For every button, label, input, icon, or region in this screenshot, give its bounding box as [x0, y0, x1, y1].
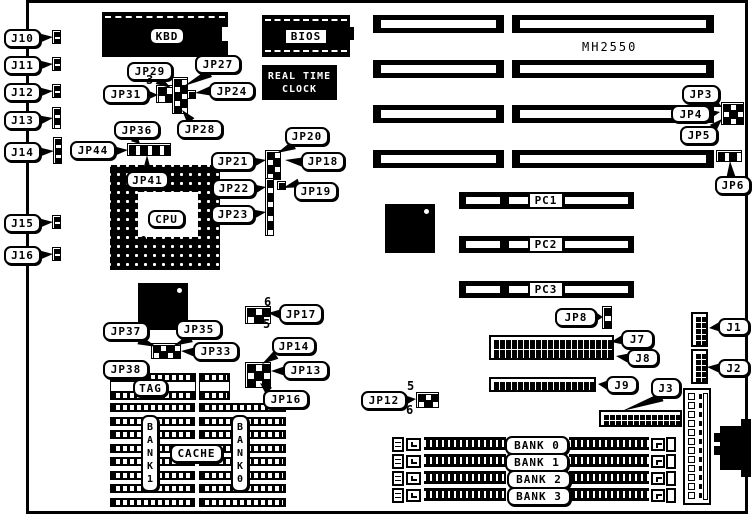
jp18-23-strip-bottom-cell [267, 187, 274, 194]
j7-j8-header-pin [554, 350, 559, 359]
j3-header-pin [652, 415, 657, 420]
simm-slot-3-clip-right [651, 472, 665, 485]
callout-bank1-cache: B A N K 1 [141, 415, 159, 492]
callout-kbd: KBD [149, 27, 185, 45]
j3-header-pin [628, 421, 633, 426]
j9-header-pin [518, 382, 523, 391]
j9-header-pin [578, 382, 583, 391]
jp12-block-cell [432, 401, 439, 408]
j10-conn [52, 30, 61, 44]
j14-conn-cell [55, 159, 62, 164]
j7-j8-header-pin [578, 340, 583, 349]
power-pin [688, 393, 695, 400]
jp13-16-block-cell [263, 364, 271, 372]
kbd-jumper-mid-cell [174, 93, 181, 100]
j7-j8-header-pin [518, 340, 523, 349]
callout-jp24: JP24 [209, 82, 255, 100]
power-pin-dash [699, 493, 702, 498]
callout-pc3: PC3 [528, 281, 564, 298]
jp33-block-cell [167, 352, 174, 359]
jp18-23-strip-bottom-cell [267, 180, 274, 187]
j10-conn-cell [54, 40, 61, 44]
simm-slot-3-bl2 [395, 480, 401, 481]
j7-j8-header-pin [596, 350, 601, 359]
power-pin [688, 456, 695, 463]
simm-slot-2-bl2 [395, 463, 401, 464]
power-pin [688, 429, 695, 436]
j1-header [691, 312, 708, 347]
j3-header-pin [640, 415, 645, 420]
power-pin-dash [699, 412, 702, 417]
j3-header-pin [634, 415, 639, 420]
j3-header-pin [676, 421, 681, 426]
jp18-23-strip-top-cell [267, 159, 274, 166]
j2-header-pin [696, 372, 701, 377]
j7-j8-header-pin [548, 350, 553, 359]
j1-header-pin [702, 317, 707, 322]
simm-slot-1-crh [656, 443, 662, 448]
j9-header-pin [560, 382, 565, 391]
jp18-23-strip-bottom-cell [267, 194, 274, 201]
jp33-block-cell [160, 345, 167, 352]
callout-jp14: JP14 [272, 337, 316, 355]
simm-slot-1-bar2 [569, 437, 649, 450]
jp18-23-strip-top-cell [274, 166, 281, 173]
jp3-5-block-cell [737, 104, 744, 111]
callout-jp19: JP19 [294, 182, 338, 201]
jp12-block-cell [425, 394, 432, 401]
j7-j8-header-pin [530, 350, 535, 359]
j7-j8-header-pin [554, 340, 559, 349]
jp8-block [602, 306, 612, 329]
power-pin [688, 483, 695, 490]
j14-conn [53, 137, 62, 164]
j3-header-pin [604, 421, 609, 426]
kbd-jumper-mid-cell [174, 79, 181, 86]
callout-jp41: JP41 [126, 171, 169, 189]
j7-j8-header-pin [518, 350, 523, 359]
simm-slot-2-bl1 [395, 459, 401, 460]
jp17-block-cell [255, 316, 263, 324]
callout-jp28: JP28 [177, 120, 223, 139]
pci-slot-1-stripe1 [466, 197, 500, 204]
simm-slot-3-bl1 [395, 476, 401, 477]
jp18-23-strip-bottom-cell [267, 208, 274, 215]
jp17-block-cell [255, 308, 263, 316]
jp13-16-block-cell [247, 372, 255, 380]
jp18-23-strip-bottom-cell [267, 229, 274, 236]
j3-header-pin [616, 415, 621, 420]
power-pin-dash [699, 421, 702, 426]
jp18-23-strip-top [265, 150, 281, 180]
j7-j8-header-pin [608, 350, 613, 359]
power-rail [703, 393, 708, 500]
kbd-jumper-mid-cell [181, 79, 188, 86]
callout-j15: J15 [4, 214, 41, 233]
jp3-5-block-cell [737, 118, 744, 125]
callout-j2: J2 [718, 359, 750, 377]
j7-j8-header-pin [512, 350, 517, 359]
j3-header-pin [658, 415, 663, 420]
isa-slot-2-seg2-stripe [520, 65, 706, 73]
jp36-strip-cell [165, 145, 171, 156]
simm-slot-1-bl2 [395, 446, 401, 447]
callout-jp16: JP16 [263, 390, 309, 409]
jp3-5-block-cell [730, 104, 737, 111]
jp18-23-strip-bottom-cell [267, 222, 274, 229]
j3-header-pin [610, 415, 615, 420]
power-pin [688, 492, 695, 499]
jp33-block-cell [160, 352, 167, 359]
simm-slot-1-bracket-right [666, 437, 676, 452]
j7-j8-header-pin [602, 350, 607, 359]
j11-conn [52, 57, 61, 71]
jp18-23-strip-top-cell [267, 152, 274, 159]
simm-slot-3-bracket-right [666, 471, 676, 486]
j2-header-pin [702, 354, 707, 359]
callout-bank3-simm: BANK 3 [507, 487, 571, 506]
power-pin [688, 420, 695, 427]
callout-jp12: JP12 [361, 391, 407, 410]
j9-header-pin [542, 382, 547, 391]
j3-header-pin [634, 421, 639, 426]
power-pin-dash [699, 457, 702, 462]
jp18-23-strip-top-cell [274, 152, 281, 159]
power-pin [688, 438, 695, 445]
callout-jp3: JP3 [682, 85, 720, 104]
jp13-16-block-cell [263, 372, 271, 380]
jp13-16-block [245, 362, 271, 388]
j3-header-pin [646, 415, 651, 420]
callout-j9: J9 [606, 376, 638, 394]
power-pin-dash [699, 475, 702, 480]
rtc-chip-text: REAL TIME CLOCK [262, 65, 337, 100]
simm-slot-4-crh [656, 494, 662, 499]
j7-j8-header [489, 335, 614, 360]
j9-header-pin [524, 382, 529, 391]
simm-slot-1-bracket-left [392, 437, 404, 452]
callout-jp22: JP22 [212, 179, 256, 198]
j9-header [489, 377, 596, 392]
pci-slot-1-stripe3 [565, 197, 628, 204]
j7-j8-header-pin [560, 350, 565, 359]
simm-slot-3-bar1 [424, 471, 506, 484]
callout-j16: J16 [4, 246, 41, 265]
callout-jp13: JP13 [283, 361, 329, 380]
jp12-block-cell [432, 394, 439, 401]
jp19-pin [277, 181, 286, 190]
j9-header-pin [500, 382, 505, 391]
power-pin [688, 411, 695, 418]
simm-slot-4-bar1 [424, 488, 506, 501]
jp18-23-strip-top-cell [274, 159, 281, 166]
bios-chip-tab [349, 27, 354, 40]
jp17-block-cell [247, 308, 255, 316]
jp6-block-cell [736, 152, 742, 162]
j7-j8-header-pin [506, 340, 511, 349]
j3-header-pin [622, 421, 627, 426]
cache-ctrl-chip-pin1-dot [177, 288, 182, 293]
power-pin-dash [699, 394, 702, 399]
j3-header-pin [670, 421, 675, 426]
j9-header-pin [566, 382, 571, 391]
callout-j7: J7 [621, 330, 654, 349]
pci-slot-1-stripe2 [509, 197, 529, 204]
pin-number-pin3-kbd-jumper: 3 [146, 73, 153, 87]
callout-cache: CACHE [170, 444, 223, 463]
j7-j8-header-pin [494, 340, 499, 349]
jp18-23-strip-bottom [265, 178, 274, 236]
simm-slot-2-bar2 [569, 454, 649, 467]
callout-jp23: JP23 [211, 205, 255, 224]
pci-slot-3-stripe1 [466, 286, 500, 293]
j3-header-pin [676, 415, 681, 420]
pci-slot-2-stripe3 [565, 241, 628, 248]
j7-j8-header-pin [566, 350, 571, 359]
j7-j8-header-pin [548, 340, 553, 349]
j1-header-pin [702, 335, 707, 340]
isa-slot-1-seg1-stripe [381, 20, 496, 28]
isa-slot-1-seg2-stripe [520, 20, 706, 28]
jp3-5-block-cell [723, 111, 730, 118]
jp33-block-cell [174, 352, 181, 359]
j13-conn-cell [54, 124, 61, 129]
j9-header-pin [512, 382, 517, 391]
kbd-jumper-mid-cell [174, 86, 181, 93]
j3-header-pin [616, 421, 621, 426]
j9-header-pin [590, 382, 595, 391]
jp17-block-cell [263, 308, 271, 316]
j3-header [599, 410, 682, 427]
simm-slot-1-bl1 [395, 442, 401, 443]
jp33-block-cell [174, 345, 181, 352]
jp12-block [416, 392, 439, 408]
jp8-block-cell [604, 315, 612, 322]
j1-header-pin [702, 329, 707, 334]
callout-j11: J11 [4, 56, 41, 75]
j7-j8-header-pin [584, 350, 589, 359]
j7-j8-header-pin [572, 340, 577, 349]
chipset-chip-pin1-dot [424, 209, 429, 214]
kbd-jumper-nub [187, 90, 196, 99]
simm-slot-4-clh [411, 493, 417, 498]
jp33-block [151, 343, 181, 359]
pin-number-pin5-jp12: 5 [407, 379, 414, 393]
callout-jp4: JP4 [671, 105, 711, 123]
j2-header-pin [702, 366, 707, 371]
jp33-block-cell [153, 352, 160, 359]
jp3-5-block-cell [730, 118, 737, 125]
simm-slot-4-clip-left [406, 489, 421, 502]
jp18-23-strip-top-cell [274, 173, 281, 180]
bios-chip-dash-top [265, 19, 347, 21]
simm-slot-1-clh [411, 442, 417, 447]
jp3-5-block [721, 102, 744, 125]
power-pin-dash [699, 448, 702, 453]
callout-jp36: JP36 [114, 121, 160, 139]
jp6-block [716, 150, 742, 162]
isa-slot-2-seg1-stripe [381, 65, 496, 73]
simm-slot-2-bracket-right [666, 454, 676, 469]
jp33-block-cell [153, 345, 160, 352]
jp13-16-block-cell [247, 380, 255, 388]
j1-header-pin [696, 323, 701, 328]
j9-header-pin [572, 382, 577, 391]
j1-header-pin [702, 323, 707, 328]
callout-jp38: JP38 [103, 360, 149, 379]
j1-header-pin [702, 341, 707, 346]
j7-j8-header-pin [608, 340, 613, 349]
jp3-5-block-cell [723, 104, 730, 111]
cpu-pin1-dot [141, 236, 146, 241]
j7-j8-header-pin [542, 340, 547, 349]
j7-j8-header-pin [506, 350, 511, 359]
j7-j8-header-pin [524, 350, 529, 359]
kbd-jumper-mid-cell [181, 107, 188, 114]
simm-slot-4-bracket-left [392, 488, 404, 503]
cache-chip-col1-row3-legs-bottom [199, 498, 286, 507]
j1-header-pin [696, 317, 701, 322]
jp36-strip [127, 143, 171, 156]
j3-header-pin [604, 415, 609, 420]
simm-slot-3-bar2 [569, 471, 649, 484]
j2-header-pin [696, 360, 701, 365]
jp12-block-cell [418, 394, 425, 401]
pin-number-pin5-jp17: 5 [263, 317, 270, 331]
j7-j8-header-pin [572, 350, 577, 359]
j7-j8-header-pin [500, 350, 505, 359]
jp12-block-cell [425, 401, 432, 408]
pci-slot-3-stripe2 [509, 286, 529, 293]
callout-jp35: JP35 [176, 320, 222, 339]
j3-header-pin [646, 421, 651, 426]
jp8-block-cell [604, 322, 612, 329]
pci-slot-2-stripe1 [466, 241, 500, 248]
power-pin [688, 465, 695, 472]
j15-conn-cell [54, 225, 61, 229]
j7-j8-header-pin [536, 340, 541, 349]
jp13-16-block-cell [255, 364, 263, 372]
callout-jp21: JP21 [211, 152, 255, 171]
pin-number-pin6-jp12: 6 [406, 403, 413, 417]
simm-slot-2-crh [656, 460, 662, 465]
j2-header-pin [696, 378, 701, 383]
j7-j8-header-pin [536, 350, 541, 359]
j7-j8-header-pin [512, 340, 517, 349]
simm-slot-2-bracket-left [392, 454, 404, 469]
j7-j8-header-pin [566, 340, 571, 349]
callout-j1: J1 [718, 318, 750, 336]
j9-header-pin [548, 382, 553, 391]
jp18-23-strip-bottom-cell [267, 201, 274, 208]
simm-slot-2-clip-right [651, 455, 665, 468]
j7-j8-header-pin [494, 350, 499, 359]
j9-header-pin [494, 382, 499, 391]
j7-j8-header-pin [500, 340, 505, 349]
simm-slot-4-bl1 [395, 493, 401, 494]
callout-jp5: JP5 [680, 126, 718, 145]
j7-j8-header-pin [530, 340, 535, 349]
callout-jp27: JP27 [195, 55, 241, 74]
j7-j8-header-pin [560, 340, 565, 349]
j12-conn-cell [54, 94, 61, 98]
jp13-16-block-cell [247, 364, 255, 372]
j15-conn [52, 215, 61, 229]
callout-bank0-cache: B A N K 0 [231, 415, 249, 492]
j7-j8-header-pin [590, 340, 595, 349]
power-pin-dash [699, 484, 702, 489]
bios-chip-dash-bottom [265, 50, 347, 52]
simm-slot-1-clip-left [406, 438, 421, 451]
jp13-16-block-cell [263, 380, 271, 388]
keyboard-din-connector-3 [741, 419, 751, 477]
j12-conn [52, 84, 61, 98]
j3-header-pin [658, 421, 663, 426]
power-pin-dash [699, 466, 702, 471]
j13-conn [52, 107, 61, 129]
power-connector [683, 388, 711, 505]
jp17-block-cell [247, 316, 255, 324]
j7-j8-header-pin [602, 340, 607, 349]
j2-header [691, 349, 708, 384]
j3-header-pin [640, 421, 645, 426]
j1-header-pin [696, 329, 701, 334]
tag-socket-2-legs-top [199, 373, 230, 382]
simm-slot-3-bracket-left [392, 471, 404, 486]
power-pin-dash [699, 403, 702, 408]
callout-cpu: CPU [148, 210, 185, 228]
callout-jp44: JP44 [70, 141, 116, 160]
j9-header-pin [530, 382, 535, 391]
jp13-16-block-cell [255, 372, 263, 380]
isa-slot-4-seg1-stripe [381, 155, 496, 163]
isa-slot-3-seg1-stripe [381, 110, 496, 118]
simm-slot-3-clh [411, 476, 417, 481]
pin-number-pin6-jp17: 6 [264, 295, 271, 309]
power-pin [688, 474, 695, 481]
j11-conn-cell [54, 67, 61, 71]
kbd-jumper-left-cell [158, 95, 166, 103]
j7-j8-header-pin [542, 350, 547, 359]
callout-jp37: JP37 [103, 322, 149, 341]
j3-header-pin [610, 421, 615, 426]
callout-jp17: JP17 [279, 304, 323, 324]
kbd-jumper-mid-cell [174, 107, 181, 114]
tag-socket-2-legs-bottom [199, 391, 230, 400]
callout-jp8: JP8 [555, 308, 597, 327]
simm-slot-4-bar2 [569, 488, 649, 501]
callout-j3: J3 [651, 378, 681, 398]
j3-header-pin [664, 421, 669, 426]
j2-header-pin [702, 372, 707, 377]
j7-j8-header-pin [584, 340, 589, 349]
kbd-jumper-mid-cell [181, 100, 188, 107]
isa-slot-4-seg2-stripe [520, 155, 706, 163]
j9-header-pin [584, 382, 589, 391]
jp12-block-cell [418, 401, 425, 408]
cache-chip-col0-row0-legs-top [110, 403, 195, 412]
jp8-block-cell [604, 308, 612, 315]
j7-j8-header-pin [590, 350, 595, 359]
jp3-5-block-cell [730, 111, 737, 118]
callout-jp31: JP31 [103, 85, 149, 104]
jp18-23-strip-bottom-cell [267, 215, 274, 222]
callout-jp33: JP33 [193, 342, 239, 361]
j16-conn-cell [54, 257, 61, 261]
callout-j12: J12 [4, 83, 41, 102]
callout-j14: J14 [4, 142, 41, 162]
pci-slot-2-stripe2 [509, 241, 529, 248]
